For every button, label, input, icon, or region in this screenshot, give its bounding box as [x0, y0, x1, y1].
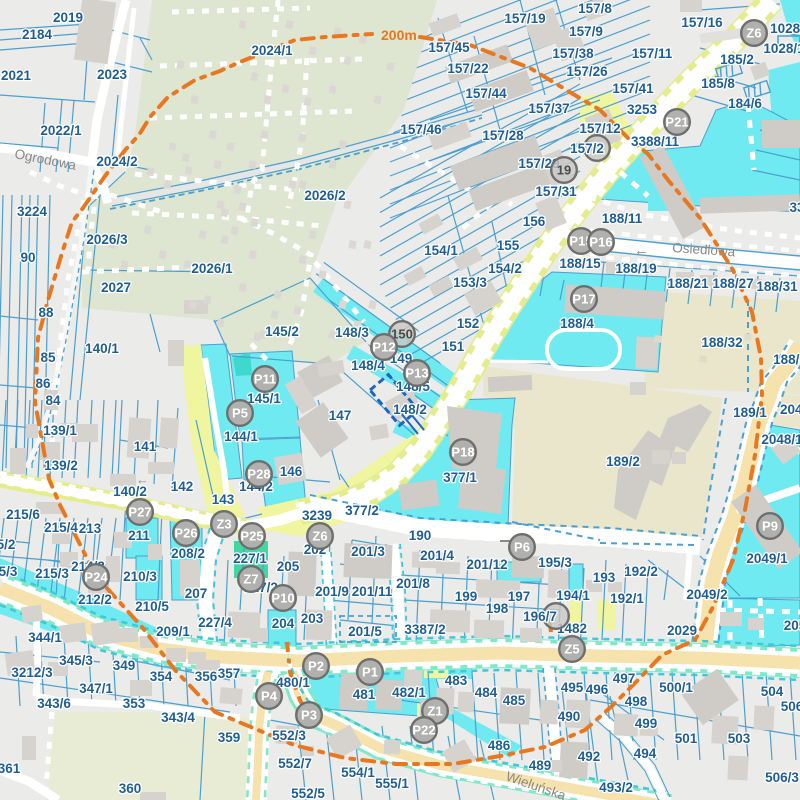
svg-text:207: 207 [185, 586, 208, 601]
svg-text:Z3: Z3 [216, 517, 231, 532]
svg-text:199: 199 [455, 589, 478, 604]
svg-text:139/1: 139/1 [43, 423, 77, 438]
svg-text:192/1: 192/1 [610, 591, 644, 606]
svg-text:157/16: 157/16 [681, 15, 723, 30]
svg-text:2049/1: 2049/1 [746, 551, 788, 566]
svg-text:189/2: 189/2 [606, 454, 640, 469]
svg-text:85: 85 [40, 350, 56, 365]
svg-text:145/2: 145/2 [265, 324, 299, 339]
svg-text:2049/2: 2049/2 [686, 587, 727, 602]
svg-text:157/26: 157/26 [566, 64, 608, 79]
svg-text:188/32: 188/32 [701, 335, 742, 350]
svg-text:496: 496 [586, 682, 609, 697]
svg-text:188/21: 188/21 [667, 276, 709, 291]
svg-text:Z5: Z5 [564, 642, 579, 657]
svg-text:345/3: 345/3 [59, 653, 93, 668]
svg-text:P26: P26 [174, 526, 197, 541]
svg-text:P18: P18 [451, 445, 474, 460]
svg-text:208/2: 208/2 [171, 546, 205, 561]
svg-text:33: 33 [789, 200, 800, 215]
svg-text:204: 204 [272, 616, 295, 631]
svg-text:2048: 2048 [780, 402, 800, 417]
svg-text:347/1: 347/1 [79, 681, 113, 696]
svg-text:349: 349 [113, 658, 136, 673]
svg-text:215/6: 215/6 [6, 507, 40, 522]
svg-text:227/4: 227/4 [198, 615, 232, 630]
svg-text:495: 495 [561, 680, 584, 695]
svg-text:497: 497 [613, 671, 636, 686]
svg-text:483: 483 [445, 673, 468, 688]
svg-text:140/2: 140/2 [113, 484, 147, 499]
svg-text:145/1: 145/1 [247, 391, 281, 406]
svg-text:203: 203 [301, 611, 324, 626]
svg-text:506: 506 [781, 699, 800, 714]
svg-text:140/1: 140/1 [85, 341, 119, 356]
svg-text:215/4: 215/4 [44, 520, 78, 535]
svg-text:157/2: 157/2 [570, 141, 604, 156]
svg-text:494: 494 [634, 746, 657, 761]
svg-text:200m: 200m [381, 27, 417, 43]
svg-text:90: 90 [20, 250, 35, 265]
svg-text:5/3: 5/3 [0, 564, 18, 579]
svg-text:201/12: 201/12 [466, 557, 507, 572]
svg-text:157/19: 157/19 [504, 11, 545, 26]
svg-text:147: 147 [329, 408, 352, 423]
svg-text:195/3: 195/3 [538, 555, 572, 570]
svg-text:157/22: 157/22 [447, 61, 488, 76]
svg-text:357: 357 [218, 666, 241, 681]
svg-text:157/11: 157/11 [632, 46, 673, 61]
svg-text:2026/2: 2026/2 [304, 188, 345, 203]
svg-text:141: 141 [134, 439, 157, 454]
svg-text:354: 354 [150, 669, 173, 684]
svg-text:P12: P12 [372, 340, 395, 355]
svg-text:205: 205 [784, 618, 800, 633]
svg-text:157/41: 157/41 [612, 81, 654, 96]
svg-text:Z1: Z1 [427, 704, 442, 719]
svg-text:190: 190 [409, 528, 432, 543]
svg-text:P25: P25 [240, 529, 263, 544]
svg-text:506/3: 506/3 [765, 770, 799, 785]
svg-text:3387/2: 3387/2 [404, 622, 445, 637]
svg-text:157/12: 157/12 [579, 121, 620, 136]
svg-text:343/6: 343/6 [37, 696, 71, 711]
svg-text:19: 19 [557, 163, 571, 178]
svg-text:504: 504 [761, 684, 784, 699]
svg-text:185/8: 185/8 [701, 76, 735, 91]
svg-text:P6: P6 [514, 540, 530, 555]
svg-text:552/5: 552/5 [291, 786, 325, 800]
svg-text:3253: 3253 [627, 102, 658, 117]
svg-text:86: 86 [35, 376, 51, 391]
svg-text:3388/11: 3388/11 [631, 134, 680, 149]
svg-text:361: 361 [0, 761, 21, 776]
svg-text:481: 481 [353, 687, 376, 702]
svg-text:2019: 2019 [53, 10, 83, 25]
svg-text:343/4: 343/4 [161, 710, 195, 725]
svg-text:Z6: Z6 [312, 529, 327, 544]
svg-text:2024/1: 2024/1 [251, 43, 293, 58]
svg-text:1028/: 1028/ [770, 21, 800, 36]
svg-text:482/1: 482/1 [392, 685, 426, 700]
svg-text:201/11: 201/11 [352, 584, 393, 599]
svg-text:157/37: 157/37 [528, 101, 569, 116]
svg-text:188/9: 188/9 [773, 352, 800, 367]
svg-text:344/1: 344/1 [28, 630, 62, 645]
svg-text:499: 499 [635, 716, 658, 731]
svg-text:Z7: Z7 [243, 572, 258, 587]
svg-text:151: 151 [442, 339, 465, 354]
svg-text:143: 143 [212, 492, 235, 507]
svg-text:P22: P22 [412, 723, 435, 738]
svg-text:554/1: 554/1 [341, 765, 375, 780]
svg-text:356: 356 [195, 669, 218, 684]
svg-text:P17: P17 [572, 292, 595, 307]
svg-text:188/19: 188/19 [615, 261, 656, 276]
svg-text:2022/1: 2022/1 [40, 123, 82, 138]
svg-text:157/8: 157/8 [578, 1, 612, 16]
svg-text:2023: 2023 [97, 67, 128, 82]
svg-text:P24: P24 [84, 570, 108, 585]
svg-text:552/3: 552/3 [272, 728, 306, 743]
svg-text:88: 88 [38, 305, 54, 320]
svg-text:3224: 3224 [17, 204, 48, 219]
svg-text:154/1: 154/1 [424, 243, 458, 258]
svg-text:2048/1: 2048/1 [761, 432, 800, 447]
svg-text:153/3: 153/3 [453, 275, 487, 290]
svg-text:377/2: 377/2 [345, 503, 379, 518]
svg-text:201/4: 201/4 [420, 548, 454, 563]
svg-text:157/28: 157/28 [482, 128, 524, 143]
svg-text:211: 211 [128, 528, 150, 543]
svg-text:146: 146 [280, 464, 303, 479]
svg-text:156: 156 [523, 214, 546, 229]
svg-text:500/1: 500/1 [659, 680, 693, 695]
svg-text:155: 155 [497, 238, 520, 253]
svg-text:144/1: 144/1 [224, 429, 258, 444]
svg-text:1028/1: 1028/1 [763, 41, 800, 56]
svg-text:2026/1: 2026/1 [191, 261, 233, 276]
svg-text:492: 492 [578, 749, 601, 764]
svg-text:157/46: 157/46 [400, 122, 442, 137]
svg-text:485: 485 [503, 693, 526, 708]
svg-text:484: 484 [475, 685, 498, 700]
svg-text:148/3: 148/3 [335, 325, 369, 340]
svg-text:201/3: 201/3 [351, 544, 385, 559]
svg-text:P13: P13 [405, 366, 428, 381]
svg-text:480/1: 480/1 [276, 675, 310, 690]
svg-text:360: 360 [119, 781, 142, 796]
svg-text:196/7: 196/7 [523, 609, 557, 624]
svg-text:188/4: 188/4 [560, 316, 594, 331]
svg-text:84: 84 [45, 393, 61, 408]
svg-text:185/2: 185/2 [720, 52, 754, 67]
svg-text:2024/2: 2024/2 [96, 154, 137, 169]
svg-text:498: 498 [625, 694, 648, 709]
svg-text:157/45: 157/45 [428, 40, 470, 55]
svg-text:3212/3: 3212/3 [11, 665, 53, 680]
svg-text:2026/3: 2026/3 [86, 232, 128, 247]
svg-text:197: 197 [508, 589, 531, 604]
svg-text:359: 359 [218, 730, 241, 745]
svg-text:P10: P10 [271, 591, 294, 606]
svg-text:P5: P5 [232, 406, 248, 421]
svg-text:P3: P3 [301, 708, 317, 723]
svg-text:193: 193 [593, 570, 616, 585]
svg-text:157/9: 157/9 [569, 24, 603, 39]
svg-text:210/5: 210/5 [135, 599, 169, 614]
svg-text:139/2: 139/2 [44, 458, 78, 473]
svg-text:212/2: 212/2 [78, 592, 112, 607]
svg-text:148/2: 148/2 [393, 402, 427, 417]
svg-text:154/2: 154/2 [488, 261, 522, 276]
svg-text:188/31: 188/31 [756, 279, 798, 294]
svg-text:489: 489 [529, 758, 552, 773]
svg-text:213: 213 [79, 521, 102, 536]
svg-text:3239: 3239 [302, 508, 332, 523]
svg-text:157/44: 157/44 [465, 86, 507, 101]
svg-text:486: 486 [488, 738, 511, 753]
svg-text:P28: P28 [247, 467, 270, 482]
svg-text:555/1: 555/1 [375, 776, 409, 791]
svg-text:490: 490 [558, 709, 581, 724]
svg-text:P16: P16 [589, 235, 612, 250]
svg-text:157/38: 157/38 [552, 46, 594, 61]
svg-text:205: 205 [277, 559, 300, 574]
svg-text:503: 503 [728, 731, 751, 746]
svg-text:P9: P9 [762, 519, 778, 534]
svg-text:552/7: 552/7 [278, 756, 312, 771]
svg-text:188/27: 188/27 [712, 276, 753, 291]
svg-text:201/9: 201/9 [315, 584, 349, 599]
svg-text:P21: P21 [665, 115, 688, 130]
svg-text:188/15: 188/15 [559, 256, 601, 271]
svg-text:198: 198 [486, 601, 509, 616]
svg-text:184/6: 184/6 [728, 96, 762, 111]
svg-text:2027: 2027 [101, 280, 131, 295]
svg-text:377/1: 377/1 [443, 470, 477, 485]
svg-text:227/1: 227/1 [233, 551, 267, 566]
svg-text:210/3: 210/3 [123, 569, 157, 584]
svg-text:142: 142 [171, 479, 194, 494]
svg-text:493/2: 493/2 [599, 780, 633, 795]
svg-text:P27: P27 [128, 505, 151, 520]
svg-text:188/11: 188/11 [602, 211, 643, 226]
svg-text:189/1: 189/1 [733, 405, 767, 420]
svg-text:P11: P11 [254, 372, 276, 387]
svg-text:353: 353 [123, 696, 146, 711]
svg-text:P1: P1 [362, 665, 378, 680]
svg-text:←: ← [634, 242, 649, 259]
svg-text:Z6: Z6 [746, 26, 761, 41]
svg-text:2021: 2021 [1, 68, 32, 83]
svg-text:152: 152 [457, 316, 480, 331]
svg-text:194/1: 194/1 [556, 588, 590, 603]
svg-text:215/3: 215/3 [35, 566, 69, 581]
svg-text:2029: 2029 [667, 623, 697, 638]
svg-text:192/2: 192/2 [624, 564, 658, 579]
svg-text:201/5: 201/5 [348, 624, 382, 639]
svg-text:209/1: 209/1 [156, 624, 190, 639]
svg-text:5/2: 5/2 [0, 537, 15, 552]
svg-text:201/8: 201/8 [396, 576, 430, 591]
svg-text:P4: P4 [261, 689, 278, 704]
svg-text:157/31: 157/31 [535, 184, 577, 199]
svg-text:501: 501 [675, 731, 698, 746]
svg-text:2184: 2184 [22, 27, 53, 42]
svg-text:P2: P2 [308, 659, 324, 674]
